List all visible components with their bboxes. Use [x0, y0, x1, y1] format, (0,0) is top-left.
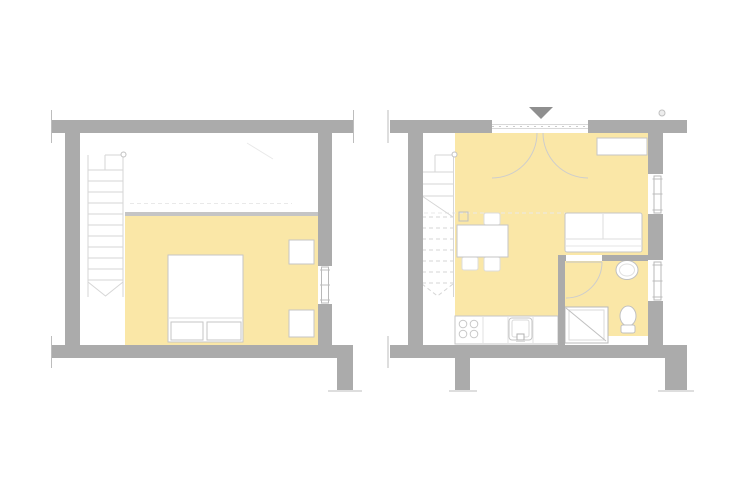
stair-start-marker [121, 152, 126, 157]
column-marker [659, 110, 665, 116]
counter [455, 316, 558, 344]
kitchen-counter [455, 316, 558, 344]
loft-edge [125, 212, 318, 216]
floor-plans-drawing [0, 0, 750, 500]
bathroom-wall-top [602, 255, 648, 261]
wall-right-upper [648, 133, 663, 174]
wall-top-right [588, 120, 687, 133]
stair-cut-line [422, 196, 453, 217]
chair-bottom-left [462, 257, 478, 270]
floor-plans-canvas [0, 0, 750, 500]
sideboard [597, 138, 647, 155]
shower [565, 307, 608, 343]
wall-right-lower [648, 301, 663, 345]
wall-right-middle [648, 214, 663, 260]
bathroom-wall-left [558, 255, 565, 345]
stair-treads-solid [422, 172, 453, 196]
staircase-down [88, 152, 126, 297]
double-bed [168, 255, 243, 342]
chair-bottom-right [484, 257, 500, 271]
wall-bottom [390, 345, 687, 358]
staircase-up [422, 152, 457, 297]
wall-stub-bottom-right [337, 358, 353, 390]
dining-table [457, 225, 508, 257]
entrance-arrow-icon [529, 107, 553, 119]
stair-direction-arrow [422, 284, 453, 296]
stair-treads [88, 170, 123, 280]
wall-left [408, 120, 423, 358]
pillow-right [207, 322, 241, 340]
wall-stub-bottom-left [455, 358, 470, 390]
wall-right-upper [318, 133, 332, 266]
wall-stub-bottom-right [665, 358, 687, 390]
window-living-room [653, 176, 663, 213]
wall-right-lower [318, 304, 332, 345]
wall-top-left [390, 120, 492, 133]
wall-top [52, 120, 353, 133]
sofa [565, 213, 642, 252]
window [320, 267, 330, 303]
wall-left [65, 120, 80, 358]
stair-direction-arrow [88, 282, 123, 296]
right-floor-plan [388, 107, 694, 391]
toilet-base [621, 325, 635, 333]
wall-bottom [52, 345, 353, 358]
kitchen-sink [509, 318, 532, 342]
window-bathroom [653, 262, 663, 300]
roof-slope-line [247, 143, 273, 159]
chair-top [484, 213, 500, 225]
pillow-left [171, 322, 203, 340]
bathroom-wall-top-corner [558, 255, 566, 261]
faucet [517, 334, 524, 340]
nightstand-lower [289, 310, 314, 337]
nightstand-upper [289, 240, 314, 264]
stair-start-marker [452, 152, 457, 157]
left-floor-plan [52, 110, 363, 391]
stair-treads-dashed [422, 217, 453, 283]
toilet [620, 306, 636, 333]
